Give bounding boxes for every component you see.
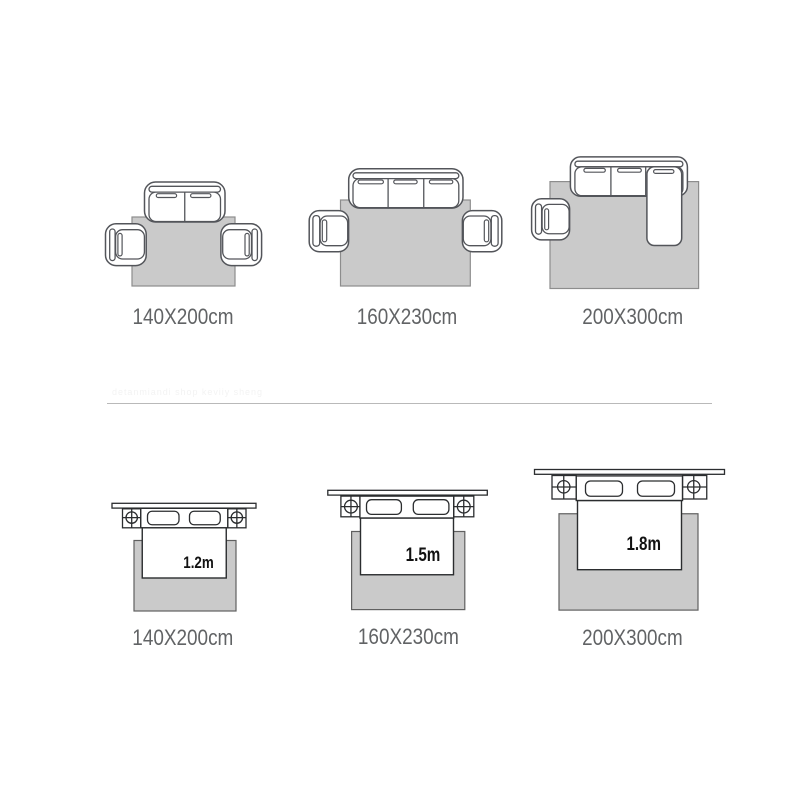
svg-text:160X230cm: 160X230cm bbox=[358, 624, 459, 649]
svg-text:detanmiandi shop keviiy sheng: detanmiandi shop keviiy sheng bbox=[112, 387, 262, 397]
svg-text:160X230cm: 160X230cm bbox=[357, 304, 458, 329]
svg-text:200X300cm: 200X300cm bbox=[582, 625, 683, 650]
svg-text:140X200cm: 140X200cm bbox=[133, 304, 234, 329]
svg-text:1.2m: 1.2m bbox=[183, 553, 214, 572]
svg-text:200X300cm: 200X300cm bbox=[582, 304, 683, 329]
svg-text:140X200cm: 140X200cm bbox=[132, 625, 233, 650]
svg-text:1.5m: 1.5m bbox=[406, 545, 441, 566]
svg-text:1.8m: 1.8m bbox=[626, 534, 661, 555]
